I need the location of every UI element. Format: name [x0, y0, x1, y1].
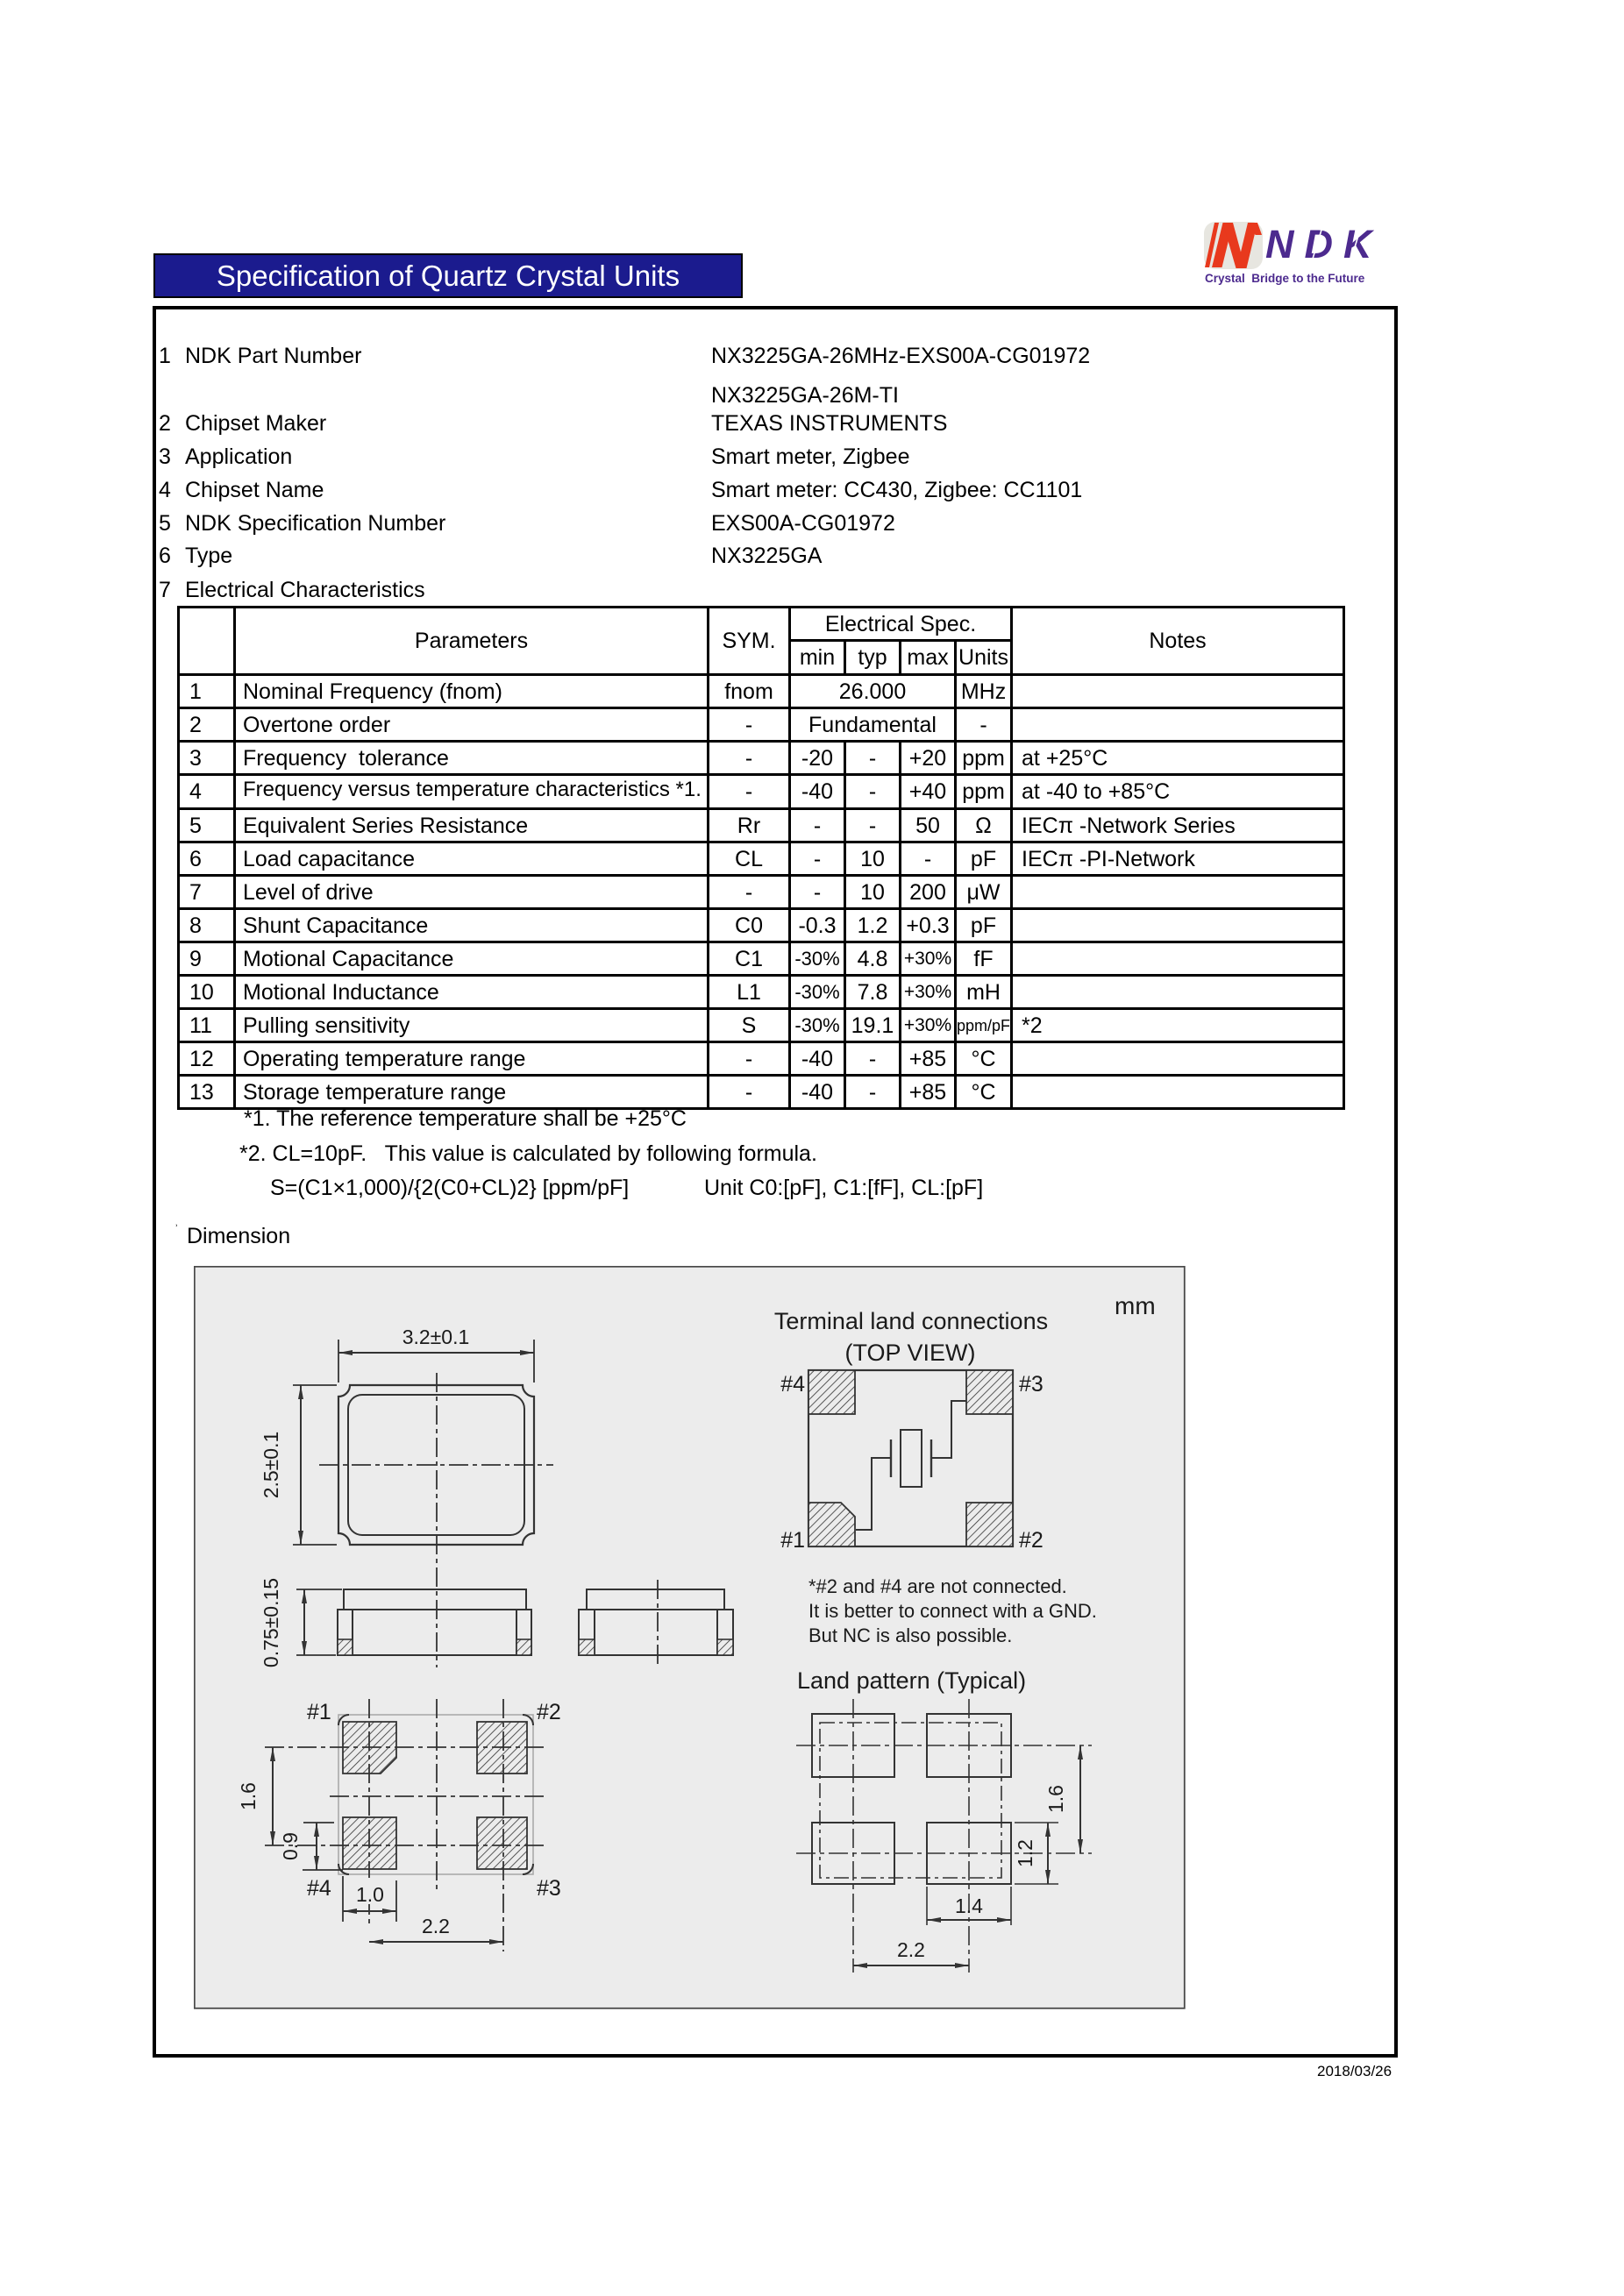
svg-text:Terminal land connections: Terminal land connections — [774, 1308, 1048, 1334]
svg-text:1.2: 1.2 — [1014, 1839, 1036, 1867]
svg-text:2.2: 2.2 — [422, 1915, 450, 1937]
svg-text:#1: #1 — [780, 1528, 805, 1553]
svg-text:#3: #3 — [1019, 1372, 1043, 1397]
svg-text:#3: #3 — [537, 1876, 561, 1901]
svg-text:#2: #2 — [537, 1700, 561, 1724]
svg-text:Land pattern (Typical): Land pattern (Typical) — [797, 1667, 1026, 1694]
svg-text:1.4: 1.4 — [955, 1894, 983, 1917]
svg-text:#2: #2 — [1019, 1528, 1043, 1553]
svg-text:mm: mm — [1115, 1292, 1156, 1319]
svg-text:#1: #1 — [307, 1700, 331, 1724]
svg-text:1.6: 1.6 — [1044, 1785, 1067, 1813]
svg-text:3.2±0.1: 3.2±0.1 — [402, 1326, 470, 1348]
svg-text:Crystal Bridge to the Future: Crystal Bridge to the Future — [1205, 272, 1365, 285]
svg-text:#4: #4 — [307, 1876, 331, 1901]
svg-text:#4: #4 — [780, 1372, 805, 1397]
svg-text:1.0: 1.0 — [356, 1883, 384, 1906]
svg-text:0.75±0.15: 0.75±0.15 — [260, 1578, 282, 1667]
svg-text:But NC is also possible.: But NC is also possible. — [808, 1624, 1012, 1646]
svg-text:*#2 and #4 are not connected.: *#2 and #4 are not connected. — [808, 1575, 1067, 1597]
svg-text:1.6: 1.6 — [237, 1782, 260, 1810]
svg-text:2.2: 2.2 — [897, 1938, 925, 1961]
svg-text:0.9: 0.9 — [279, 1832, 302, 1860]
svg-text:(TOP VIEW): (TOP VIEW) — [844, 1340, 975, 1366]
svg-text:It is better to connect with a: It is better to connect with a GND. — [808, 1600, 1097, 1622]
svg-text:NDK: NDK — [1265, 222, 1383, 267]
svg-text:2.5±0.1: 2.5±0.1 — [260, 1432, 282, 1499]
